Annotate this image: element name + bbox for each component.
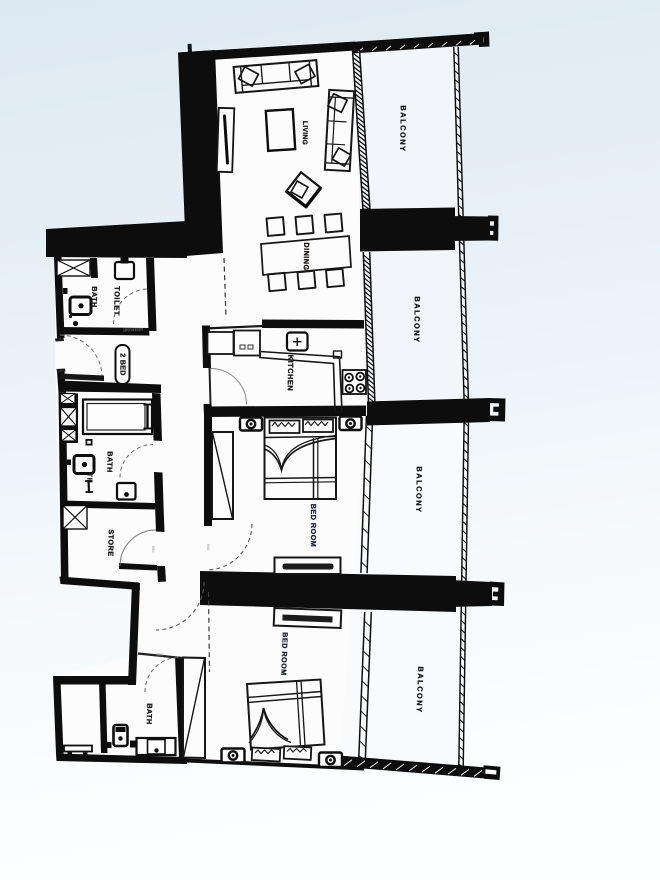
svg-text:BALCONY: BALCONY <box>398 105 408 152</box>
svg-text:BALCONY: BALCONY <box>415 666 426 713</box>
svg-text:BED ROOM: BED ROOM <box>279 632 290 676</box>
svg-text:LIVING: LIVING <box>301 121 308 145</box>
svg-text:900: 900 <box>206 544 211 551</box>
svg-text:900: 900 <box>151 546 156 553</box>
svg-text:STORE: STORE <box>106 529 115 556</box>
svg-text:BED ROOM: BED ROOM <box>309 504 318 548</box>
svg-text:BATH: BATH <box>105 451 114 473</box>
svg-text:BALCONY: BALCONY <box>412 296 422 343</box>
svg-text:TOILET: TOILET <box>112 286 122 316</box>
svg-text:DINING: DINING <box>302 242 311 270</box>
svg-text:BATH: BATH <box>90 286 99 308</box>
svg-text:2 BED: 2 BED <box>119 353 127 375</box>
svg-text:KITCHEN: KITCHEN <box>286 355 296 392</box>
svg-text:BATH: BATH <box>145 703 155 725</box>
svg-text:900: 900 <box>157 652 165 658</box>
svg-text:BALCONY: BALCONY <box>414 466 424 513</box>
